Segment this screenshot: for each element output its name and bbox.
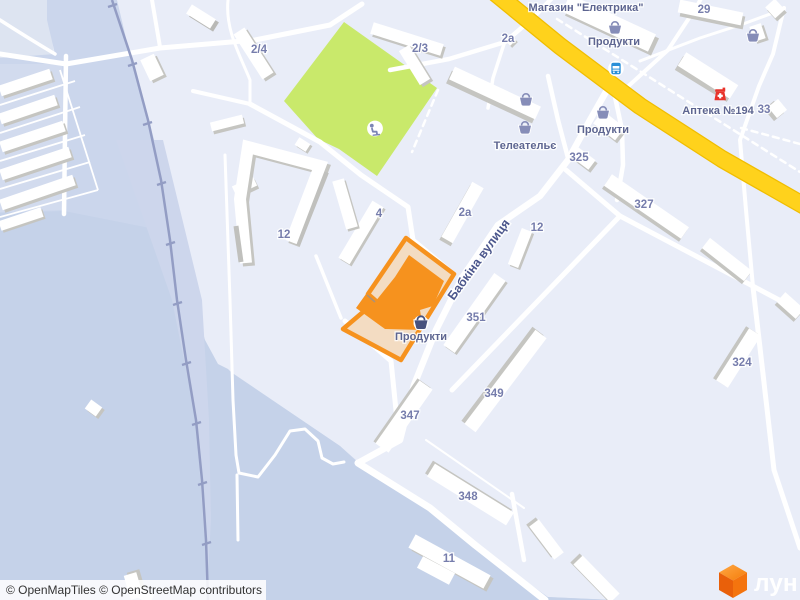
svg-text:324: 324 — [732, 357, 752, 369]
svg-text:Аптека №194: Аптека №194 — [682, 105, 754, 117]
svg-text:12: 12 — [531, 222, 544, 234]
svg-text:© OpenMapTiles © OpenStreetMap: © OpenMapTiles © OpenStreetMap contribut… — [6, 583, 262, 597]
svg-text:349: 349 — [484, 388, 503, 400]
svg-text:29: 29 — [698, 4, 711, 16]
svg-text:Продукти: Продукти — [588, 36, 640, 48]
svg-text:11: 11 — [443, 553, 456, 565]
svg-text:12: 12 — [278, 229, 291, 241]
svg-text:2/3: 2/3 — [412, 43, 428, 55]
svg-text:327: 327 — [634, 199, 653, 211]
svg-text:4: 4 — [376, 208, 383, 220]
svg-text:2а: 2а — [502, 33, 515, 45]
svg-text:347: 347 — [400, 410, 419, 422]
svg-text:Магазин "Електрика": Магазин "Електрика" — [529, 2, 644, 14]
svg-text:лун: лун — [754, 570, 798, 597]
svg-text:325: 325 — [569, 152, 589, 164]
svg-text:2а: 2а — [459, 207, 472, 219]
svg-text:Продукти: Продукти — [577, 124, 629, 136]
svg-text:2/4: 2/4 — [251, 44, 268, 56]
svg-text:Продукти: Продукти — [395, 331, 447, 343]
svg-text:33: 33 — [758, 104, 771, 116]
svg-text:Телеательє: Телеательє — [494, 140, 557, 152]
svg-text:351: 351 — [466, 312, 486, 324]
svg-text:348: 348 — [458, 491, 478, 503]
